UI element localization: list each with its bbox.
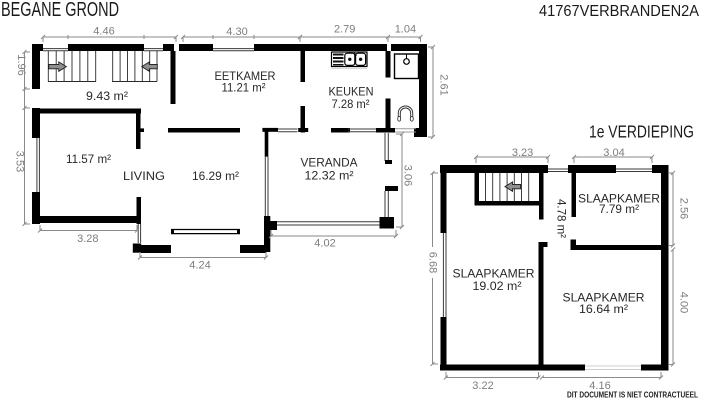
- svg-text:VERANDA: VERANDA: [301, 156, 358, 170]
- svg-text:6.68: 6.68: [427, 252, 439, 273]
- svg-text:19.02 m²: 19.02 m²: [473, 279, 522, 293]
- svg-text:16.29 m²: 16.29 m²: [192, 169, 239, 183]
- svg-text:9.43 m²: 9.43 m²: [86, 89, 128, 103]
- svg-text:2.56: 2.56: [678, 198, 690, 219]
- svg-text:1e VERDIEPING: 1e VERDIEPING: [589, 122, 694, 142]
- svg-text:4.30: 4.30: [226, 26, 247, 38]
- svg-text:4.24: 4.24: [189, 260, 210, 272]
- svg-text:4.00: 4.00: [678, 292, 690, 313]
- svg-text:3.06: 3.06: [402, 165, 414, 186]
- svg-text:4.46: 4.46: [93, 26, 114, 38]
- svg-text:7.79 m²: 7.79 m²: [599, 202, 639, 216]
- svg-text:4.02: 4.02: [314, 238, 335, 250]
- svg-text:16.64 m²: 16.64 m²: [579, 302, 628, 316]
- svg-text:1.96: 1.96: [15, 54, 27, 75]
- svg-text:2.61: 2.61: [438, 74, 450, 95]
- svg-text:DIT DOCUMENT IS NIET CONTRACTU: DIT DOCUMENT IS NIET CONTRACTUEEL: [567, 390, 698, 400]
- svg-text:12.32 m²: 12.32 m²: [305, 169, 354, 183]
- svg-text:11.21 m²: 11.21 m²: [222, 81, 266, 95]
- svg-text:4.78 m²: 4.78 m²: [555, 199, 569, 238]
- svg-text:3.28: 3.28: [77, 233, 98, 245]
- svg-text:41767VERBRANDEN2A: 41767VERBRANDEN2A: [539, 3, 699, 20]
- svg-text:11.57 m²: 11.57 m²: [66, 152, 111, 166]
- svg-text:2.79: 2.79: [334, 24, 355, 36]
- svg-text:LIVING: LIVING: [123, 169, 165, 183]
- svg-text:3.53: 3.53: [14, 151, 26, 172]
- svg-text:4.16: 4.16: [589, 380, 610, 392]
- svg-text:BEGANE GROND: BEGANE GROND: [1, 0, 119, 21]
- svg-text:3.22: 3.22: [472, 380, 493, 392]
- svg-text:7.28 m²: 7.28 m²: [332, 97, 370, 111]
- svg-text:1.04: 1.04: [395, 24, 416, 36]
